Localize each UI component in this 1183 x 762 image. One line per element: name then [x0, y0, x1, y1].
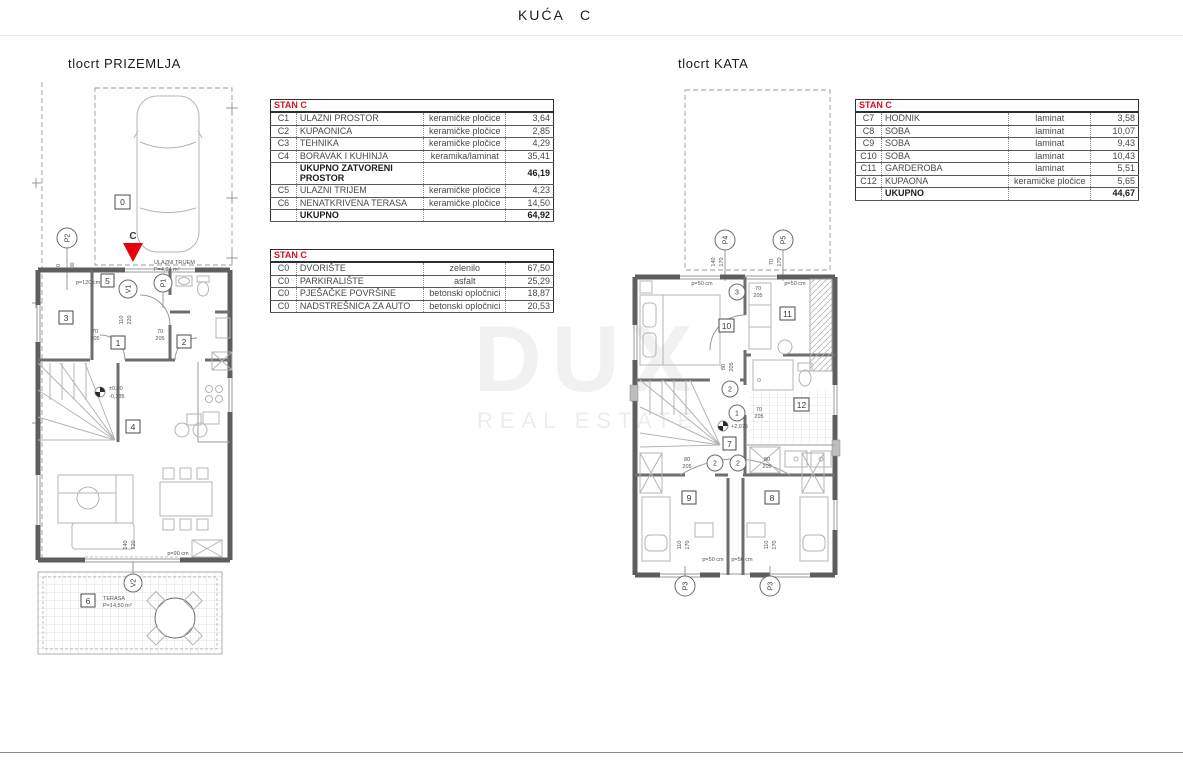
room-tag-8: 8	[770, 493, 775, 503]
carport-outline	[95, 88, 238, 265]
carport-number-tag: 0	[115, 195, 130, 209]
door-dimensions: 70 205 70 205 110 220	[90, 315, 164, 342]
table-cell	[424, 209, 506, 221]
table-cell: C0	[271, 288, 297, 300]
table-cell: 25,29	[506, 275, 554, 287]
table-cell: 9,43	[1091, 138, 1139, 150]
door-tag-2: 2	[728, 387, 732, 394]
table-cell: keramičke pločice	[1009, 175, 1091, 187]
table-cell: zelenilo	[424, 262, 506, 275]
terrace: V2 6 TERASA P=14,50 m²	[38, 561, 222, 654]
parapet-note: p=50 cm	[784, 281, 806, 287]
table-cell: C1	[271, 112, 297, 125]
parapet-note: p=50 cm	[731, 557, 753, 563]
table-cell: keramičke pločice	[424, 112, 506, 125]
table-cell	[424, 163, 506, 185]
table-row: C6NENATKRIVENA TERASAkeramičke pločice14…	[271, 197, 554, 209]
marker-p5-label: P5	[781, 236, 788, 245]
table-cell: 20,53	[506, 300, 554, 312]
room-tag-12: 12	[797, 400, 807, 410]
table-cell: C4	[271, 150, 297, 162]
sheet-title: KUĆA C	[0, 7, 1110, 23]
dim-text: 170	[685, 540, 691, 549]
table-cell: laminat	[1009, 163, 1091, 175]
table-row: C3TEHNIKAkeramičke pločice4,29	[271, 138, 554, 150]
table-cell: TEHNIKA	[296, 138, 423, 150]
table-cell: keramičke pločice	[424, 185, 506, 197]
table-row: C1ULAZNI PROSTORkeramičke pločice3,64	[271, 112, 554, 125]
table-cell: NADSTREŠNICA ZA AUTO	[296, 300, 424, 312]
entrance-marker: C	[123, 231, 143, 262]
room-tag-1: 1	[116, 338, 121, 348]
table-row: C5ULAZNI TRIJEMkeramičke pločice4,23	[271, 185, 554, 197]
table-cell: KUPAONICA	[296, 125, 423, 137]
room-tag-6: 6	[86, 596, 91, 606]
dim-text: 140	[711, 257, 717, 266]
dim-text: 170	[719, 257, 725, 266]
table-cell	[271, 163, 297, 185]
upper-plan-title: tlocrt KATA	[678, 56, 748, 71]
table-cell: 10,07	[1091, 125, 1139, 137]
table-row: C9SOBAlaminat9,43	[856, 138, 1139, 150]
table-cell: C0	[271, 262, 297, 275]
bedroom-10: 10	[640, 281, 734, 365]
table-cell: C0	[271, 300, 297, 312]
dim-text: 205	[682, 464, 691, 470]
table-cell: ULAZNI TRIJEM	[296, 185, 423, 197]
marker-p1-label: P1	[161, 279, 168, 288]
table-cell: asfalt	[424, 275, 506, 287]
ground-floor-area-table: STAN C C1ULAZNI PROSTORkeramičke pločice…	[270, 99, 554, 222]
marker-p5: P5 70 170	[769, 230, 793, 281]
dim-text: 80	[764, 457, 770, 463]
table-cell: 46,19	[506, 163, 554, 185]
table-cell: C7	[856, 112, 882, 125]
table-cell: 64,92	[506, 209, 554, 221]
room-tag-9: 9	[687, 493, 692, 503]
outdoor-area-table: STAN C C0DVORIŠTEzelenilo67,50C0PARKIRAL…	[270, 249, 554, 313]
table-cell: betonski opločnici	[424, 288, 506, 300]
dim-text: 80	[721, 364, 727, 370]
bathroom-fixtures	[176, 276, 232, 370]
bottom-divider	[0, 752, 1183, 753]
room-tag-5: 5	[105, 276, 110, 286]
table-row: C0PJEŠAČKE POVRŠINEbetonski opločnici18,…	[271, 288, 554, 300]
marker-p2-label: P2	[65, 234, 72, 243]
marker-p4: P4 140 170	[711, 230, 735, 281]
table-cell: 3,58	[1091, 112, 1139, 125]
upper-floor-area-table: STAN C C7HODNIKlaminat3,58C8SOBAlaminat1…	[855, 99, 1139, 201]
dim-text: 220	[127, 315, 133, 324]
room-tag-7: 7	[727, 439, 732, 449]
table-cell: SOBA	[881, 150, 1008, 162]
table-cell: 67,50	[506, 262, 554, 275]
table-cell: 4,29	[506, 138, 554, 150]
table-cell: UKUPNO	[881, 188, 1008, 200]
table-cell: PARKIRALIŠTE	[296, 275, 424, 287]
table-cell: keramičke pločice	[424, 197, 506, 209]
dim-text: 70	[755, 286, 761, 292]
terrace-name: TERASA	[103, 596, 125, 602]
table-row: C0DVORIŠTEzelenilo67,50	[271, 262, 554, 275]
room-tag-11: 11	[783, 309, 792, 319]
marker-v2-label: V2	[131, 579, 138, 588]
table-cell	[856, 188, 882, 200]
room-tag-2: 2	[182, 337, 187, 347]
door-tag-1: 1	[735, 411, 739, 418]
table-cell: betonski opločnici	[424, 300, 506, 312]
marker-p2: P2 70 100	[56, 228, 77, 290]
table-cell: SOBA	[881, 138, 1008, 150]
bottom-door-tags: 2 2 80 205 80 205	[682, 455, 771, 471]
table-cell: NENATKRIVENA TERASA	[296, 197, 423, 209]
table-cell: GARDEROBA	[881, 163, 1008, 175]
marker-p4-label: P4	[723, 236, 730, 245]
dim-text: 170	[777, 257, 783, 266]
table-cell: 44,67	[1091, 188, 1139, 200]
floor-plan-sheet: KUĆA C DUX REAL ESTATE tlocrt PRIZEMLJA …	[0, 0, 1183, 762]
table-cell: C12	[856, 175, 882, 187]
dim-text: 205	[90, 336, 99, 342]
table-cell: BORAVAK I KUHINJA	[296, 150, 423, 162]
dim-text: 110	[677, 541, 683, 550]
table-row: C2KUPAONICAkeramičke pločice2,85	[271, 125, 554, 137]
dim-text: 70	[92, 329, 98, 335]
table-cell: keramičke pločice	[424, 125, 506, 137]
table-cell: 5,51	[1091, 163, 1139, 175]
table-cell: laminat	[1009, 150, 1091, 162]
level-value-2: -0,185	[109, 394, 125, 400]
stairs	[38, 363, 115, 440]
dim-text: 80	[684, 457, 690, 463]
table-cell: C6	[271, 197, 297, 209]
level-marker: ±0,00 -0,185	[95, 386, 125, 400]
top-divider	[0, 35, 1183, 36]
table-row: C11GARDEROBAlaminat5,51	[856, 163, 1139, 175]
table-cell: laminat	[1009, 138, 1091, 150]
table-row: UKUPNO64,92	[271, 209, 554, 221]
porch-name: ULAZNI TRIJEM	[154, 260, 195, 266]
table-cell: UKUPNO ZATVORENI PROSTOR	[296, 163, 423, 185]
dim-text: 205	[754, 414, 763, 420]
parapet-note: p=50 cm	[702, 557, 724, 563]
dim-text: 205	[762, 464, 771, 470]
marker-p3-left: P3	[675, 566, 695, 596]
carport-number: 0	[120, 197, 125, 207]
void-outline	[685, 90, 830, 270]
dim-text: 205	[753, 293, 762, 299]
table-cell: 2,85	[506, 125, 554, 137]
car-symbol	[134, 96, 202, 252]
kitchen	[175, 362, 230, 442]
table-cell	[1009, 188, 1091, 200]
table-row: C8SOBAlaminat10,07	[856, 125, 1139, 137]
dim-text: 110	[119, 316, 125, 325]
dim-text: 170	[772, 540, 778, 549]
table-cell: C8	[856, 125, 882, 137]
table-cell: 3,64	[506, 112, 554, 125]
table-cell: SOBA	[881, 125, 1008, 137]
table-cell: 14,50	[506, 197, 554, 209]
table-cell: 4,23	[506, 185, 554, 197]
table-row: C12KUPAONAkeramičke pločice5,65	[856, 175, 1139, 187]
table-row: C10SOBAlaminat10,43	[856, 150, 1139, 162]
table-cell: PJEŠAČKE POVRŠINE	[296, 288, 424, 300]
table-row: C7HODNIKlaminat3,58	[856, 112, 1139, 125]
table-cell: C10	[856, 150, 882, 162]
parapet-note: p=90 cm	[167, 551, 189, 557]
table-cell	[271, 209, 297, 221]
table-cell: UKUPNO	[296, 209, 423, 221]
ground-plan-title: tlocrt PRIZEMLJA	[68, 56, 181, 71]
marker-p3-label: P3	[683, 582, 690, 591]
dim-text: 140	[123, 540, 129, 549]
door-tag-3: 3	[735, 290, 739, 297]
table-row: C4BORAVAK I KUHINJAkeramika/laminat35,41	[271, 150, 554, 162]
table-cell: ULAZNI PROSTOR	[296, 112, 423, 125]
table-row: UKUPNO44,67	[856, 188, 1139, 200]
table-cell: keramičke pločice	[424, 138, 506, 150]
table-row: C0NADSTREŠNICA ZA AUTObetonski opločnici…	[271, 300, 554, 312]
table-cell: C0	[271, 275, 297, 287]
porch-area: P=4,24 m²	[154, 267, 180, 273]
marker-v1-label: V1	[126, 285, 133, 294]
marker-p3-right: P3	[760, 566, 780, 596]
table-cell: C3	[271, 138, 297, 150]
level-value: ±0,00	[109, 386, 123, 392]
room-tag-4: 4	[131, 422, 136, 432]
entrance-arrow-icon	[123, 243, 143, 262]
door-tag-2: 2	[736, 461, 740, 468]
table-cell: C9	[856, 138, 882, 150]
ground-floor-plan: 0 C P2 70 100 p=120 cm	[30, 80, 270, 660]
table-cell: C2	[271, 125, 297, 137]
entrance-letter: C	[129, 231, 136, 242]
dim-text: 205	[155, 336, 164, 342]
table-title: STAN C	[856, 100, 1139, 113]
table-cell: HODNIK	[881, 112, 1008, 125]
dim-text: 70	[157, 329, 163, 335]
parapet-note: p=50 cm	[691, 281, 713, 287]
table-cell: DVORIŠTE	[296, 262, 424, 275]
upper-floor-plan: P4 140 170 P5 70 170 p=50 cm p=50 cm	[625, 85, 845, 615]
table-cell: KUPAONA	[881, 175, 1008, 187]
table-row: C0PARKIRALIŠTEasfalt25,29	[271, 275, 554, 287]
table-cell: 10,43	[1091, 150, 1139, 162]
dim-text: 70	[756, 407, 762, 413]
table-cell: C11	[856, 163, 882, 175]
table-cell: laminat	[1009, 125, 1091, 137]
table-cell: keramika/laminat	[424, 150, 506, 162]
level-value: +2,975	[731, 424, 748, 430]
table-cell: 5,65	[1091, 175, 1139, 187]
terrace-area: P=14,50 m²	[103, 603, 132, 609]
table-cell: 35,41	[506, 150, 554, 162]
table-cell: 18,87	[506, 288, 554, 300]
dim-text: 70	[769, 259, 775, 265]
table-cell: C5	[271, 185, 297, 197]
dim-text: 110	[764, 541, 770, 550]
table-cell: laminat	[1009, 112, 1091, 125]
table-row: UKUPNO ZATVORENI PROSTOR46,19	[271, 163, 554, 185]
marker-p3-label: P3	[768, 582, 775, 591]
living-room-furniture: 140 220 p=90 cm	[58, 468, 222, 557]
door-tag-2: 2	[713, 461, 717, 468]
table-title: STAN C	[271, 100, 554, 113]
dim-text: 205	[729, 362, 735, 371]
dim-text: 220	[131, 540, 137, 549]
room-tag-3: 3	[64, 313, 69, 323]
room-tag-10: 10	[722, 321, 732, 331]
table-title: STAN C	[271, 250, 554, 263]
parapet-note: p=120 cm	[76, 280, 101, 286]
